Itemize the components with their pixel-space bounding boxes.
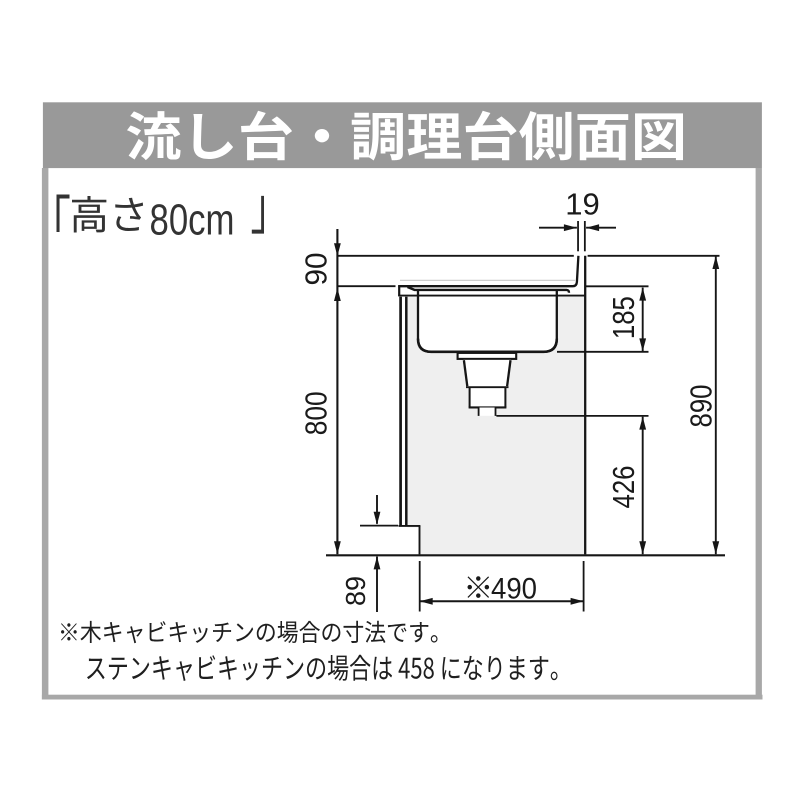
svg-text:800: 800 <box>299 391 334 435</box>
svg-text:426: 426 <box>606 466 641 509</box>
svg-text:80cm: 80cm <box>150 196 235 244</box>
svg-text:890: 890 <box>684 385 719 428</box>
svg-text:89: 89 <box>340 576 371 606</box>
svg-text:90: 90 <box>299 253 334 286</box>
svg-text:19: 19 <box>565 187 599 222</box>
svg-text:490: 490 <box>491 573 537 606</box>
svg-text:185: 185 <box>606 296 641 339</box>
